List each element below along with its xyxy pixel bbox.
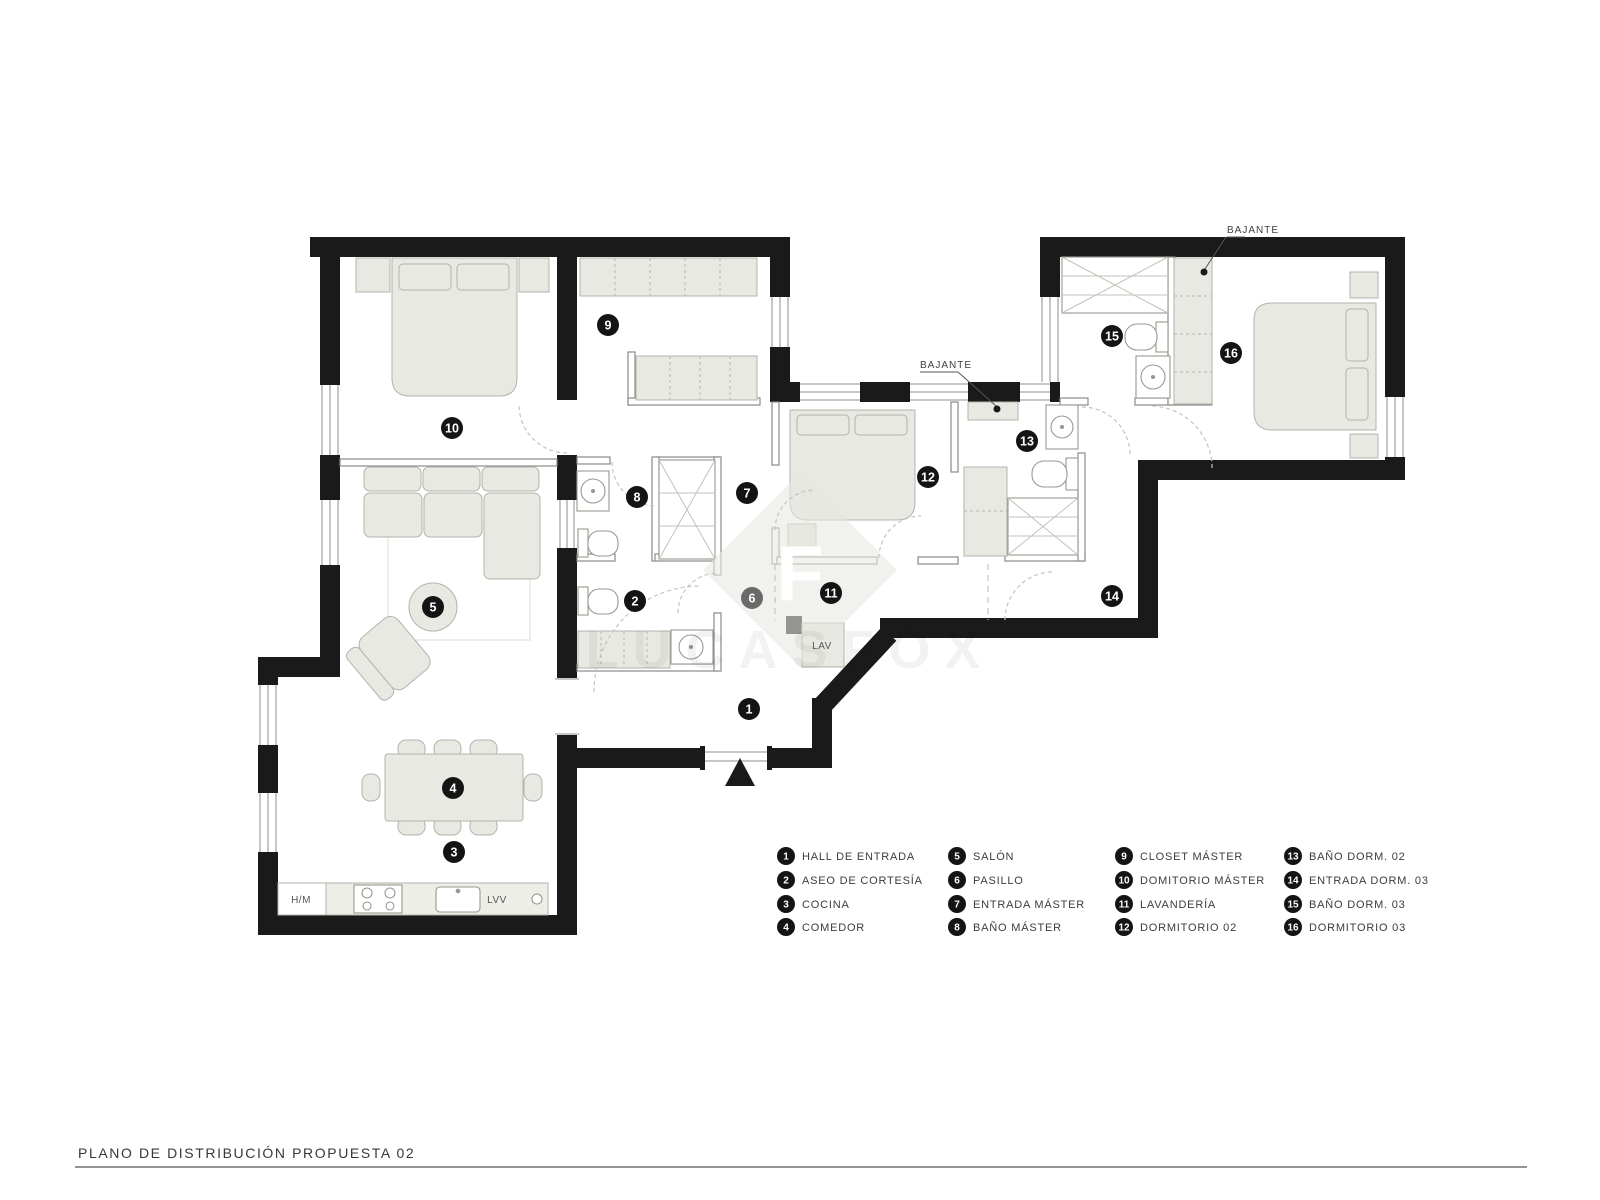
room-badge-3: 3 [443,841,465,863]
svg-text:HALL DE ENTRADA: HALL DE ENTRADA [802,851,915,863]
svg-text:SALÓN: SALÓN [973,850,1014,863]
svg-text:COCINA: COCINA [802,899,850,911]
nightstand [1350,434,1378,458]
legend-item: 14ENTRADA DORM. 03 [1284,871,1429,889]
svg-text:5: 5 [954,852,960,863]
svg-text:DORMITORIO 02: DORMITORIO 02 [1140,922,1237,934]
hm-label: H/M [291,895,311,906]
sofa [364,467,540,579]
nightstand [356,258,390,292]
window [1382,397,1408,457]
window [255,793,281,852]
shower-bano-master [659,460,715,559]
nightstand [1350,272,1378,298]
svg-text:DORMITORIO 03: DORMITORIO 03 [1309,922,1406,934]
kitchen-counter [278,883,548,915]
partition-salon [340,459,557,466]
svg-text:ASEO DE CORTESÍA: ASEO DE CORTESÍA [802,874,923,887]
svg-text:11: 11 [824,587,837,601]
bajante-label: BAJANTE [1227,225,1279,236]
svg-text:12: 12 [921,471,935,485]
room-badge-10: 10 [441,417,463,439]
bed-master [356,258,549,396]
room-badge-4: 4 [442,777,464,799]
svg-text:3: 3 [451,846,458,860]
legend-item: 5SALÓN [948,847,1014,865]
room-badge-11: 11 [820,582,842,604]
vanity-bano-03 [1136,356,1170,398]
room-badge-13: 13 [1016,430,1038,452]
room-badge-8: 8 [626,486,648,508]
watermark-letter: F [776,529,824,617]
window [1037,297,1063,382]
legend-item: 4COMEDOR [777,918,865,936]
legend-item: 6PASILLO [948,871,1024,889]
wardrobe-closet-master-low [636,356,757,400]
svg-text:14: 14 [1105,590,1119,604]
window [767,297,793,347]
legend-item: 11LAVANDERÍA [1115,895,1216,913]
svg-text:14: 14 [1287,876,1299,887]
lvv-label: LVV [487,895,507,906]
legend: 1HALL DE ENTRADA 2ASEO DE CORTESÍA 3COCI… [777,847,1429,936]
svg-text:8: 8 [954,923,960,934]
bed-dorm-03 [1254,272,1378,458]
vanity-bano-master [577,471,609,511]
svg-text:13: 13 [1020,435,1034,449]
window [910,379,968,405]
svg-text:4: 4 [783,923,789,934]
bajante-label: BAJANTE [920,360,972,371]
svg-text:1: 1 [746,703,753,717]
room-badge-1: 1 [738,698,760,720]
page-title: PLANO DE DISTRIBUCIÓN PROPUESTA 02 [78,1145,415,1161]
legend-item: 1HALL DE ENTRADA [777,847,915,865]
window [255,685,281,745]
svg-text:1: 1 [783,852,789,863]
legend-item: 15BAÑO DORM. 03 [1284,895,1406,913]
svg-text:10: 10 [445,422,459,436]
room-badge-12: 12 [917,466,939,488]
room-badge-9: 9 [597,314,619,336]
svg-text:13: 13 [1287,852,1299,863]
room-badge-6: 6 [741,587,763,609]
closet-dorm-02 [964,467,1007,556]
floor-plan: F LUCASFOX BAJANTE BAJANTE LAV H/M LVV [0,0,1600,1200]
svg-text:PASILLO: PASILLO [973,875,1024,887]
lav-label: LAV [812,641,832,652]
wardrobe-dorm-03 [1174,258,1212,404]
svg-text:COMEDOR: COMEDOR [802,922,865,934]
vanity-bano-02 [1046,405,1078,449]
title-block: PLANO DE DISTRIBUCIÓN PROPUESTA 02 [75,1145,1527,1167]
room-badge-2: 2 [624,590,646,612]
svg-text:15: 15 [1105,330,1119,344]
window [800,379,860,405]
svg-text:10: 10 [1118,876,1130,887]
room-badge-15: 15 [1101,325,1123,347]
svg-text:5: 5 [430,601,437,615]
svg-text:16: 16 [1287,923,1299,934]
watermark-brand: LUCASFOX [586,620,995,680]
svg-text:6: 6 [954,876,960,887]
kitchen-sink [436,887,480,912]
legend-item: 16DORMITORIO 03 [1284,918,1406,936]
window [317,500,343,565]
svg-text:3: 3 [783,900,789,911]
svg-text:15: 15 [1287,900,1299,911]
legend-item: 3COCINA [777,895,850,913]
wardrobe-closet-master-top [580,258,757,296]
svg-text:4: 4 [450,782,457,796]
toilet-bano-master [578,529,618,557]
svg-text:BAÑO MÁSTER: BAÑO MÁSTER [973,921,1062,934]
opening-kitchen [555,678,579,735]
svg-text:7: 7 [954,900,960,911]
room-badge-16: 16 [1220,342,1242,364]
svg-text:6: 6 [749,592,756,606]
svg-text:8: 8 [634,491,641,505]
legend-item: 2ASEO DE CORTESÍA [777,871,923,889]
svg-text:16: 16 [1224,347,1238,361]
legend-item: 10DOMITORIO MÁSTER [1115,871,1265,889]
toilet-bano-03 [1125,322,1168,352]
shower-bano-03 [1062,257,1168,313]
toilet-bano-02 [1032,458,1078,490]
svg-text:BAÑO DORM. 03: BAÑO DORM. 03 [1309,898,1406,911]
svg-text:LAVANDERÍA: LAVANDERÍA [1140,898,1216,911]
watermark: F LUCASFOX [586,473,995,680]
shower-bano-02 [1008,498,1078,555]
legend-item: 12DORMITORIO 02 [1115,918,1237,936]
bajante-cabinet-mid [968,402,1018,420]
window [1020,379,1050,405]
legend-item: 9CLOSET MÁSTER [1115,847,1243,865]
floor-plan-page: F LUCASFOX BAJANTE BAJANTE LAV H/M LVV [0,0,1600,1200]
toilet-aseo [578,587,618,615]
appliance-dot [532,894,542,904]
legend-item: 7ENTRADA MÁSTER [948,895,1085,913]
svg-text:ENTRADA MÁSTER: ENTRADA MÁSTER [973,898,1085,911]
svg-text:11: 11 [1119,900,1130,911]
svg-text:2: 2 [783,876,789,887]
room-badge-5: 5 [422,596,444,618]
svg-text:DOMITORIO MÁSTER: DOMITORIO MÁSTER [1140,874,1265,887]
room-badge-7: 7 [736,482,758,504]
nightstand [519,258,549,292]
legend-item: 13BAÑO DORM. 02 [1284,847,1406,865]
window [317,385,343,455]
svg-text:9: 9 [605,319,612,333]
svg-text:BAÑO DORM. 02: BAÑO DORM. 02 [1309,850,1406,863]
room-badge-14: 14 [1101,585,1123,607]
svg-text:2: 2 [632,595,639,609]
window-interior-glass [556,500,578,548]
svg-text:7: 7 [744,487,751,501]
svg-text:CLOSET MÁSTER: CLOSET MÁSTER [1140,850,1243,863]
stove [354,885,402,913]
legend-item: 8BAÑO MÁSTER [948,918,1062,936]
svg-text:12: 12 [1118,923,1130,934]
svg-text:ENTRADA DORM. 03: ENTRADA DORM. 03 [1309,875,1429,887]
svg-text:9: 9 [1121,852,1127,863]
